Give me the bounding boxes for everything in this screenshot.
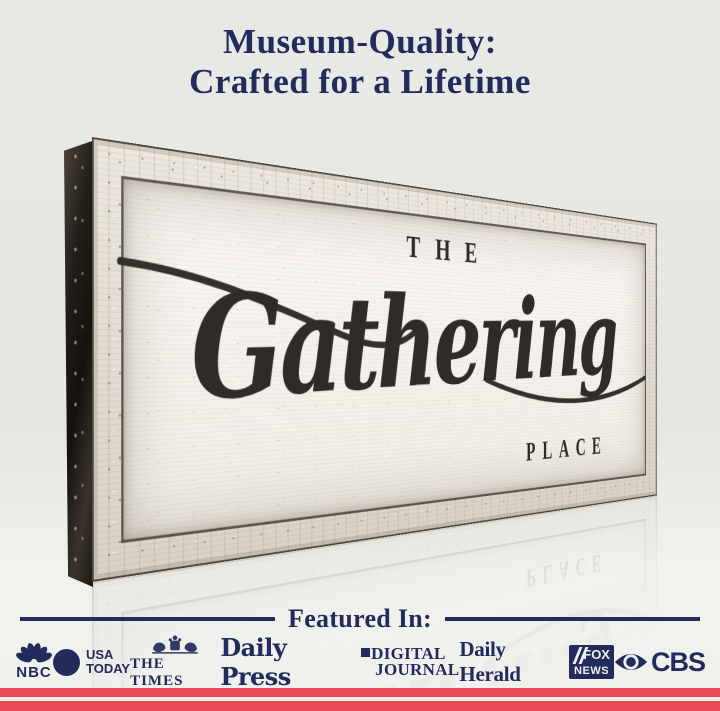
featured-in-section: Featured In:: [0, 604, 720, 634]
daily-herald-logo: Daily Herald: [459, 637, 569, 687]
fox-news-logo: FOX NEWS: [569, 645, 614, 679]
the-times-logo: THE TIMES: [130, 634, 220, 690]
fox-news-line2: NEWS: [569, 665, 614, 677]
canvas-side-edge: [64, 141, 93, 587]
usa-today-label: USA TODAY: [86, 648, 130, 675]
sign-word-gathering: Gathering: [122, 289, 645, 413]
divider-line-left: [20, 617, 275, 621]
marketing-banner: Museum-Quality: Crafted for a Lifetime T…: [0, 0, 720, 711]
nbc-label: NBC: [16, 664, 52, 681]
daily-press-label: Daily Press: [220, 633, 361, 691]
cbs-eye-icon: [614, 651, 648, 673]
cbs-logo: CBS: [614, 647, 705, 678]
usa-today-line2: TODAY: [86, 662, 130, 676]
nbc-peacock-icon: [15, 643, 53, 663]
the-times-label: THE TIMES: [130, 656, 220, 690]
cbs-label: CBS: [651, 647, 705, 678]
usa-today-logo: USA TODAY: [53, 648, 130, 675]
stripe-red-bottom: [0, 701, 720, 711]
digital-journal-square-icon: [361, 648, 370, 657]
nbc-logo: NBC: [15, 643, 53, 681]
daily-press-logo: Daily Press: [220, 633, 361, 691]
digital-journal-logo: DIGITAL JOURNAL: [361, 646, 459, 678]
digital-journal-line2: JOURNAL: [375, 662, 459, 678]
bottom-stripes: [0, 688, 720, 711]
usa-today-circle-icon: [53, 649, 80, 676]
times-crest-icon: [148, 634, 202, 655]
featured-in-label: Featured In:: [288, 604, 432, 634]
divider-line-right: [445, 617, 700, 621]
usa-today-line1: USA: [86, 648, 130, 662]
media-logos-row: NBC USA TODAY THE TIMES: [0, 639, 720, 685]
sign-canvas: THE Gathering PLACE: [124, 179, 645, 540]
fox-news-line1: FOX: [583, 647, 610, 662]
stripe-red-top: [0, 688, 720, 697]
daily-herald-label: Daily Herald: [459, 637, 569, 687]
